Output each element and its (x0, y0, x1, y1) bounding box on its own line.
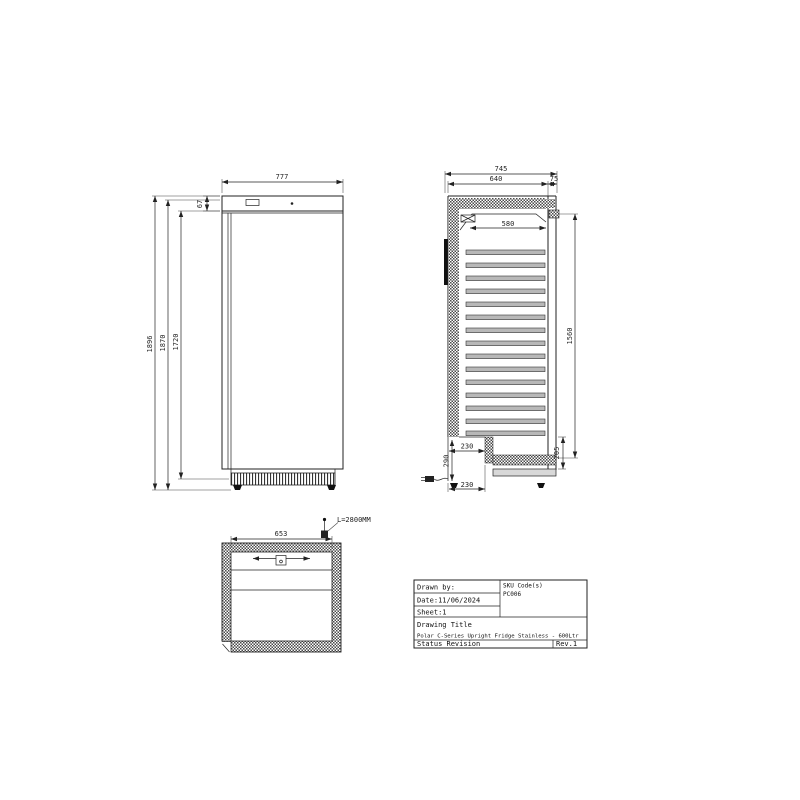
foot (327, 485, 336, 490)
power-cord (434, 478, 448, 480)
sku-code-label: SKU Code(s) (503, 583, 543, 590)
cable-length-label: L=2800MM (337, 516, 371, 524)
dim-side-compressor-recess-height: 290 (443, 455, 451, 468)
top-rear-insulation (546, 199, 555, 208)
front-view-dimensions: 777 67 1896 1870 1720 (146, 173, 343, 490)
dim-side-recess-depth-top: 230 (461, 443, 474, 451)
dim-plan-interior-width: 653 (275, 530, 288, 538)
sheet-value: Sheet:1 (417, 609, 447, 617)
drawing-sheet: 777 67 1896 1870 1720 (0, 0, 800, 800)
door-lock-icon (291, 202, 294, 205)
top-insulation (450, 198, 546, 209)
foot (233, 485, 242, 490)
side-view (421, 196, 559, 488)
shelf (466, 341, 545, 346)
dim-front-header-height: 67 (196, 200, 204, 208)
revision-value: Rev.1 (556, 640, 577, 648)
rear-hinge-bracket (549, 210, 559, 218)
brand-label (246, 200, 259, 206)
dim-side-recess-depth-bottom: 230 (461, 481, 474, 489)
shelf (466, 393, 545, 398)
shelf (466, 431, 545, 436)
door-top-panel (222, 196, 343, 211)
shelf (466, 354, 545, 359)
status-revision-label: Status Revision (417, 640, 480, 648)
drawing-title-value: Polar C-Series Upright Fridge Stainless … (417, 634, 579, 640)
door-handle (444, 239, 448, 285)
cord-anchor-block (321, 531, 328, 539)
dim-front-door-height: 1720 (172, 334, 180, 351)
ventilation-grille (231, 473, 335, 485)
shelf (466, 250, 545, 255)
floor-insulation (493, 455, 556, 465)
corner-notch (222, 642, 232, 653)
recess-wall-insulation (485, 437, 493, 463)
dim-side-body-depth: 640 (490, 175, 503, 183)
dim-side-shelf-depth: 580 (502, 220, 515, 228)
dim-side-overall-depth: 745 (495, 165, 508, 173)
shelf (466, 263, 545, 268)
dim-side-interior-height: 1560 (566, 328, 574, 345)
dim-front-width: 777 (276, 173, 289, 181)
title-block: Drawn by: SKU Code(s) PC006 Date:11/06/2… (414, 580, 587, 648)
technical-drawing: 777 67 1896 1870 1720 (0, 0, 800, 800)
door-insulation (448, 198, 459, 437)
foot (537, 483, 545, 488)
shelf-stack (466, 250, 545, 436)
dim-side-base-recess-height: 205 (553, 447, 561, 460)
dim-front-overall-height: 1896 (146, 336, 154, 353)
shelf (466, 406, 545, 411)
sku-code-value: PC006 (503, 591, 521, 598)
drawn-by-label: Drawn by: (417, 584, 455, 592)
shelf (466, 276, 545, 281)
shelf (466, 315, 545, 320)
shelf (466, 302, 545, 307)
foot (450, 483, 458, 488)
date-value: Date:11/06/2024 (417, 597, 480, 605)
door-panel (222, 211, 343, 469)
shelf (466, 328, 545, 333)
dim-front-cabinet-height: 1870 (159, 335, 167, 352)
power-plug-icon (425, 476, 434, 482)
shelf (466, 367, 545, 372)
front-view (222, 196, 343, 490)
plan-view: L=2800MM 653 (222, 516, 371, 653)
drawing-title-label: Drawing Title (417, 621, 472, 629)
cord-end-dot (323, 518, 326, 521)
shelf (466, 289, 545, 294)
shelf (466, 419, 545, 424)
base-plinth (493, 469, 556, 476)
dim-side-rear-clearance: 75 (550, 175, 558, 183)
shelf (466, 380, 545, 385)
